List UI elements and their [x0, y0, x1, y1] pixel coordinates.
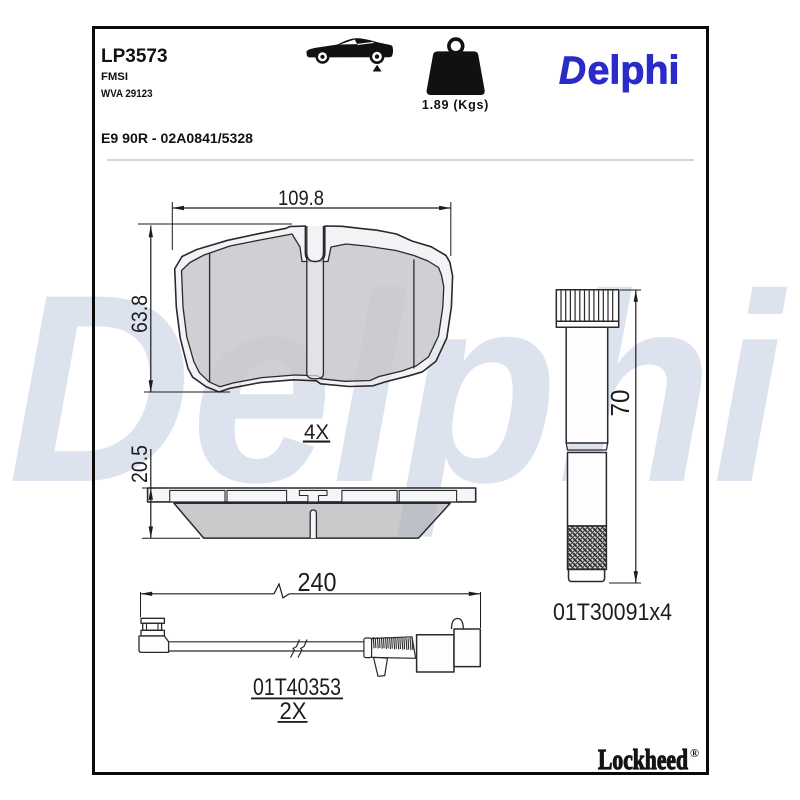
svg-text:63.8: 63.8 — [127, 295, 152, 333]
svg-text:20.5: 20.5 — [127, 445, 152, 483]
svg-text:01T30091x4: 01T30091x4 — [553, 599, 672, 626]
svg-text:Lockheed: Lockheed — [598, 744, 688, 776]
svg-text:E9 90R - 02A0841/5328: E9 90R - 02A0841/5328 — [101, 130, 253, 146]
svg-text:FMSI: FMSI — [101, 71, 128, 83]
svg-text:LP3573: LP3573 — [101, 46, 168, 67]
svg-text:01T40353: 01T40353 — [253, 674, 341, 701]
svg-text:2X: 2X — [280, 698, 307, 725]
svg-text:70: 70 — [605, 390, 635, 417]
svg-text:1.89 (Kgs): 1.89 (Kgs) — [422, 98, 489, 112]
svg-text:240: 240 — [298, 567, 337, 597]
svg-text:109.8: 109.8 — [278, 187, 324, 210]
svg-text:elphi: elphi — [588, 49, 680, 93]
svg-text:D: D — [559, 50, 586, 93]
svg-text:®: ® — [690, 746, 699, 760]
svg-text:WVA 29123: WVA 29123 — [101, 88, 153, 100]
